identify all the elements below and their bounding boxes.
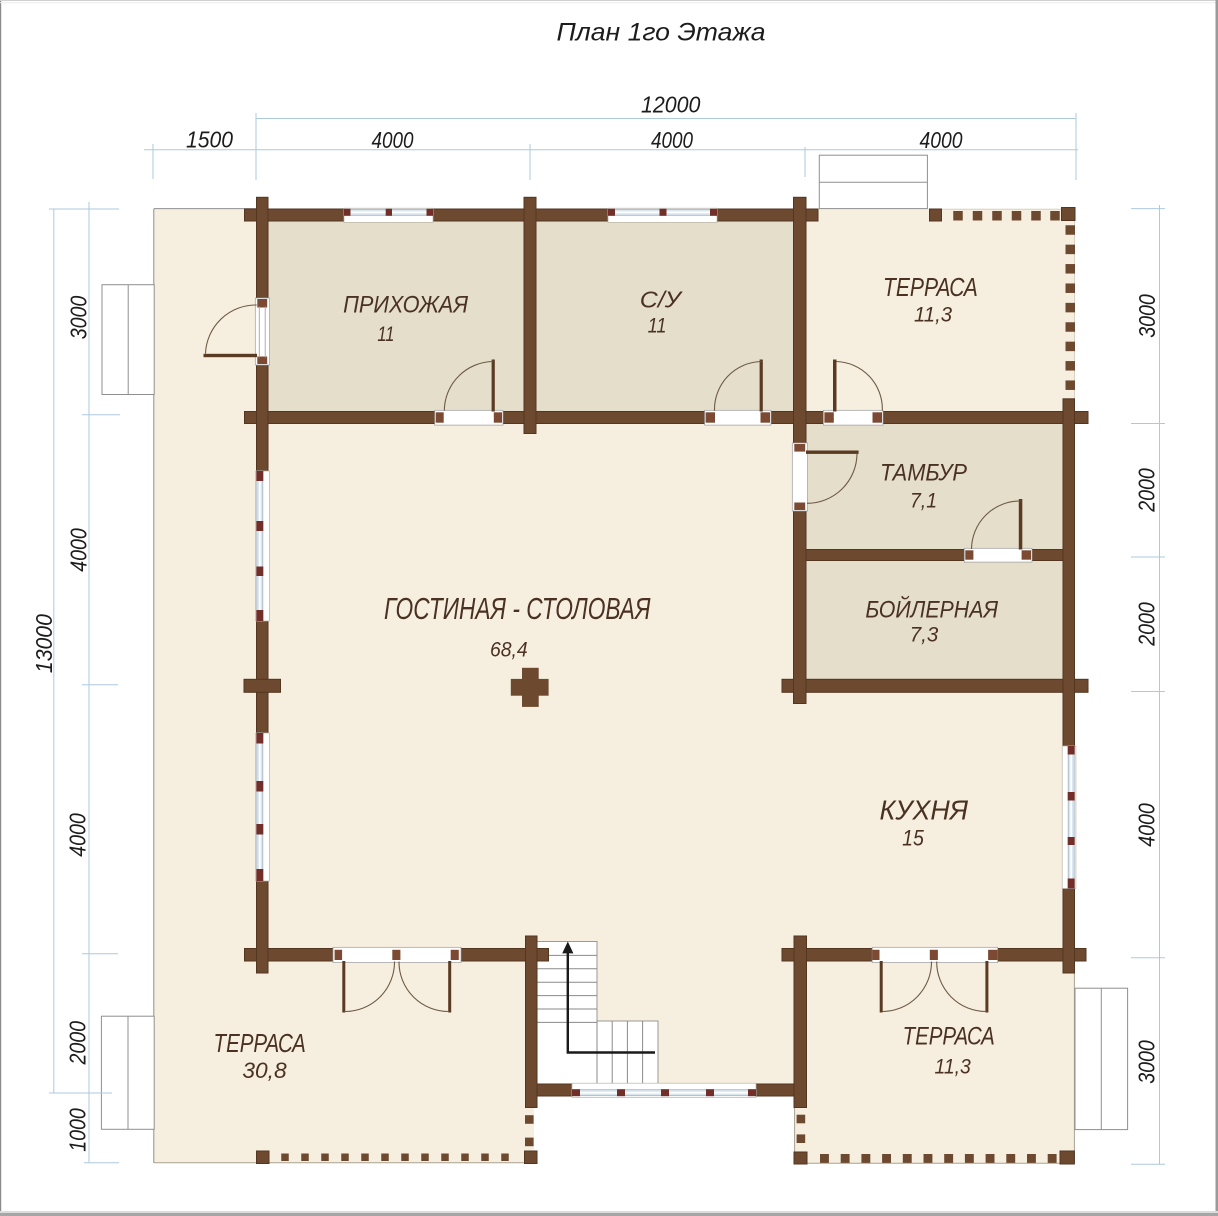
svg-text:План 1го Этажа: План 1го Этажа [557,19,766,47]
svg-text:4000: 4000 [1133,803,1159,847]
svg-text:ТЕРРАСА: ТЕРРАСА [214,1028,306,1058]
svg-text:4000: 4000 [920,127,963,153]
svg-text:4000: 4000 [372,127,414,153]
svg-text:2000: 2000 [1133,468,1159,513]
svg-text:1500: 1500 [186,127,233,153]
svg-text:4000: 4000 [65,528,91,572]
svg-text:4000: 4000 [651,127,693,153]
svg-text:ПРИХОЖАЯ: ПРИХОЖАЯ [343,292,468,319]
svg-text:3000: 3000 [1133,1040,1159,1084]
svg-text:11,3: 11,3 [914,303,952,327]
svg-text:ТАМБУР: ТАМБУР [880,460,968,487]
svg-text:3000: 3000 [1134,294,1160,338]
svg-text:11: 11 [648,313,667,337]
svg-text:11,3: 11,3 [935,1055,971,1079]
svg-text:3000: 3000 [65,296,91,340]
svg-text:13000: 13000 [31,614,57,673]
svg-text:С/У: С/У [640,287,683,313]
svg-text:2000: 2000 [1133,602,1159,647]
svg-text:68,4: 68,4 [490,638,528,662]
svg-text:КУХНЯ: КУХНЯ [880,795,969,826]
svg-text:11: 11 [377,322,394,346]
svg-text:БОЙЛЕРНАЯ: БОЙЛЕРНАЯ [865,595,998,623]
svg-text:1000: 1000 [64,1108,90,1152]
svg-text:15: 15 [902,826,924,851]
svg-text:2000: 2000 [64,1021,90,1066]
svg-text:7,1: 7,1 [910,489,937,513]
svg-text:7,3: 7,3 [910,623,939,647]
svg-text:ТЕРРАСА: ТЕРРАСА [903,1024,995,1051]
svg-text:12000: 12000 [641,92,701,118]
svg-text:ГОСТИНАЯ - СТОЛОВАЯ: ГОСТИНАЯ - СТОЛОВАЯ [384,592,651,626]
svg-text:ТЕРРАСА: ТЕРРАСА [883,272,978,302]
svg-text:30,8: 30,8 [242,1058,287,1083]
svg-text:4000: 4000 [64,813,90,857]
